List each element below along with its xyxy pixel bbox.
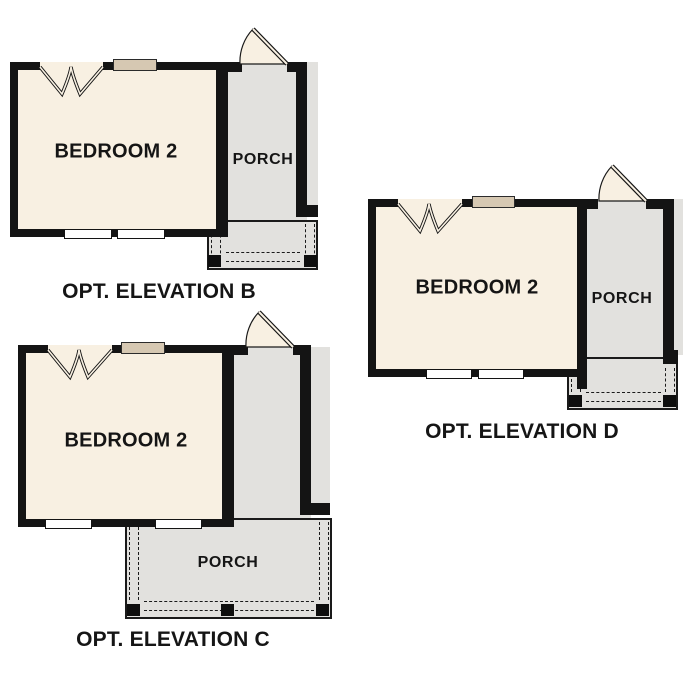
slab-dash-line bbox=[665, 368, 666, 392]
wall-segment bbox=[663, 199, 674, 352]
porch-label: PORCH bbox=[592, 290, 653, 308]
plan-elevation-d: BEDROOM 2 PORCH OPT. ELEVATION D bbox=[0, 0, 687, 687]
wall-segment bbox=[577, 199, 587, 389]
window-symbol bbox=[426, 369, 472, 379]
porch-post bbox=[569, 395, 582, 407]
window-symbol bbox=[478, 369, 524, 379]
plan-caption: OPT. ELEVATION D bbox=[425, 420, 619, 444]
porch-floor bbox=[577, 199, 663, 369]
slab-dash-line bbox=[586, 401, 661, 402]
door-swing-icon bbox=[599, 166, 646, 201]
wall-segment bbox=[577, 199, 598, 209]
wall-segment bbox=[663, 350, 678, 364]
slab-dash-line bbox=[674, 368, 675, 392]
slab-dash-line bbox=[586, 392, 661, 393]
door-opening bbox=[598, 199, 646, 209]
room-label: BEDROOM 2 bbox=[416, 277, 539, 300]
wall-opening bbox=[398, 199, 462, 207]
window-header bbox=[472, 196, 515, 208]
roof-strip bbox=[674, 199, 683, 355]
porch-post bbox=[663, 395, 676, 407]
floorplan-sheet: BEDROOM 2 PORCH OPT. ELEVATION B bbox=[0, 0, 687, 687]
